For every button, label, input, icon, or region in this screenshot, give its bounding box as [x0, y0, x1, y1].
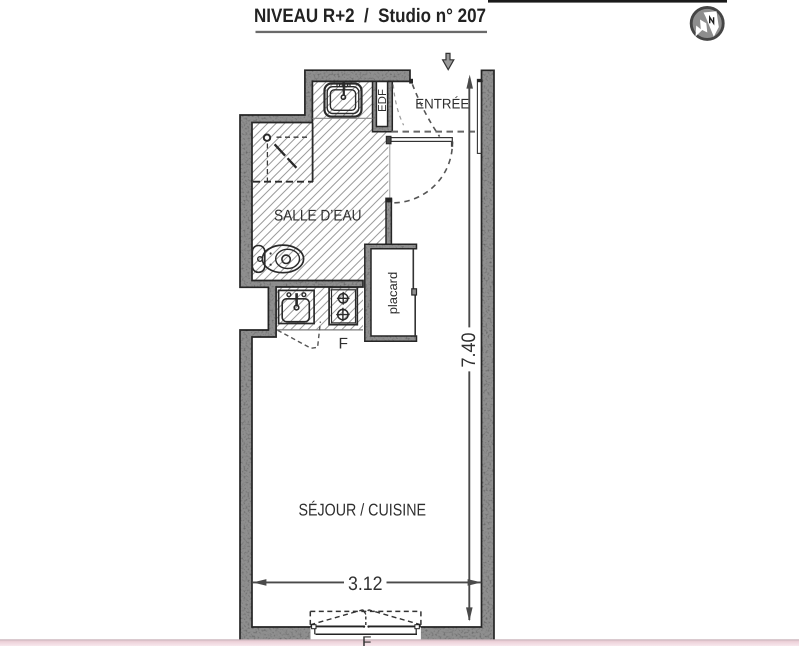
svg-text:SÉJOUR / CUISINE: SÉJOUR / CUISINE	[299, 501, 427, 520]
svg-text:3.12: 3.12	[348, 573, 383, 595]
svg-text:F: F	[339, 336, 348, 353]
svg-text:7.40: 7.40	[458, 332, 480, 367]
svg-text:SALLE D’EAU: SALLE D’EAU	[274, 208, 362, 225]
svg-text:F: F	[362, 634, 371, 646]
svg-text:placard: placard	[386, 272, 400, 315]
svg-text:NIVEAU R+2 / Studio n° 207: NIVEAU R+2 / Studio n° 207	[254, 5, 486, 27]
svg-text:ENTRÉE: ENTRÉE	[415, 96, 469, 112]
svg-text:EDF: EDF	[377, 89, 389, 112]
